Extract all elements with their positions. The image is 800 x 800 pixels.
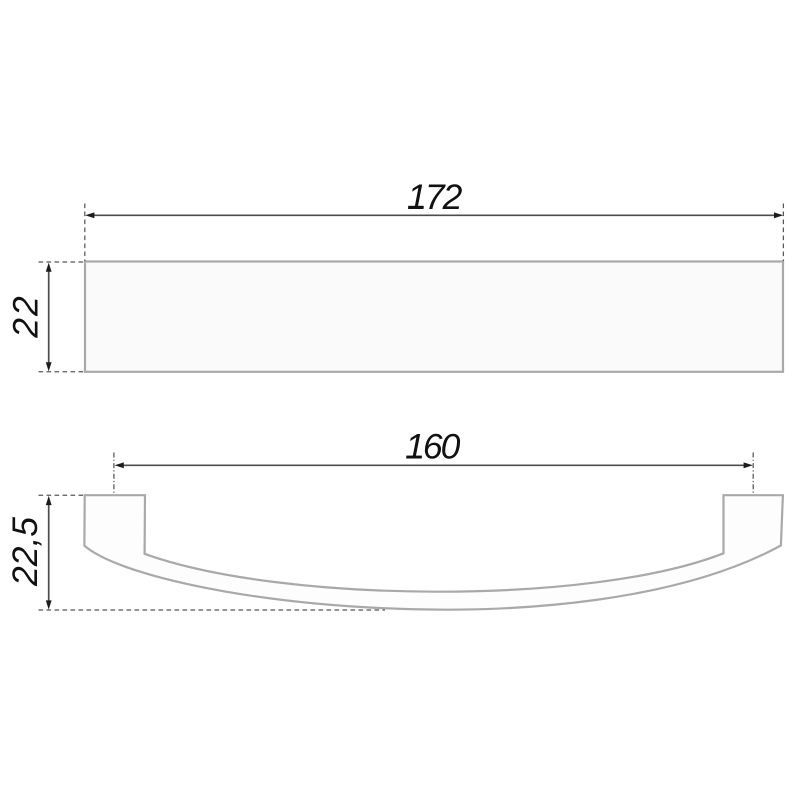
svg-text:22: 22 xyxy=(6,294,46,339)
svg-text:22,5: 22,5 xyxy=(5,517,45,587)
svg-text:172: 172 xyxy=(407,177,462,217)
svg-text:160: 160 xyxy=(405,427,460,467)
